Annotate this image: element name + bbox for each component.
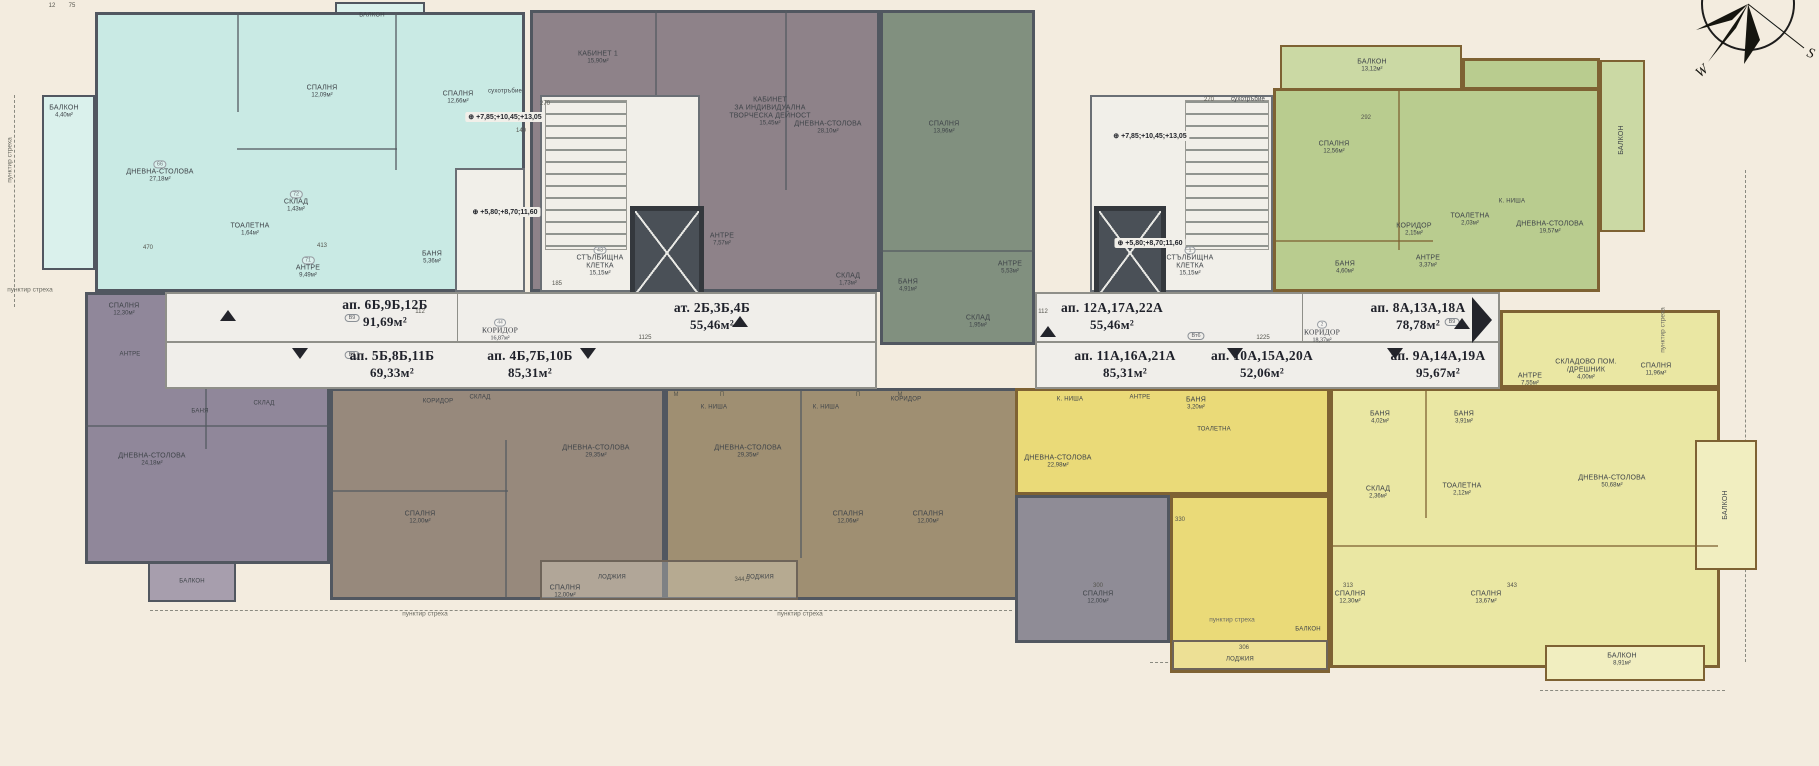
room-name: БАЛКОН bbox=[1357, 59, 1387, 67]
room-label: ТОАЛЕТНА1,64м² bbox=[231, 223, 270, 238]
room-name: ДНЕВНА-СТОЛОВА bbox=[126, 169, 193, 177]
unit-name: ап. 6Б,9Б,12Б bbox=[342, 296, 428, 314]
compass-south-label: S bbox=[1805, 46, 1817, 62]
region-apartment-yellow-top bbox=[1015, 388, 1330, 495]
room-area: 3,20м² bbox=[1186, 405, 1206, 412]
room-area: 12,66м² bbox=[443, 99, 474, 106]
stair-flight bbox=[1185, 100, 1269, 250]
room-label: СПАЛНЯ13,67м² bbox=[1471, 591, 1502, 606]
room-name: БАЛКОН bbox=[49, 105, 79, 113]
unit-name: ап. 11А,16А,21А bbox=[1074, 347, 1175, 365]
room-name: КОРИДОР bbox=[482, 327, 518, 336]
door-arrow-icon bbox=[580, 348, 596, 359]
room-name: БАЛКОН bbox=[1618, 125, 1626, 155]
room-area: 3,91м² bbox=[1454, 419, 1474, 426]
room-label: БАНЯ4,02м² bbox=[1370, 411, 1390, 426]
room-label: АНТРЕ7,55м² bbox=[1518, 373, 1542, 388]
room-area: 12,00м² bbox=[1083, 599, 1114, 606]
unit-area: 78,78м² bbox=[1370, 316, 1465, 333]
room-area: 1,73м² bbox=[836, 281, 860, 288]
unit-area: 95,67м² bbox=[1390, 364, 1485, 381]
room-name: АНТРЕ bbox=[296, 265, 320, 273]
dimension-text: 75 bbox=[69, 3, 76, 9]
room-name: ДНЕВНА-СТОЛОВА bbox=[794, 121, 861, 129]
room-name: АНТРЕ bbox=[1129, 395, 1150, 402]
room-name: СПАЛНЯ bbox=[833, 511, 864, 519]
eave-label: пунктир стреха bbox=[777, 611, 822, 618]
room-ref-badge: 43 bbox=[593, 246, 606, 254]
room-name: ТОАЛЕТНА bbox=[1197, 427, 1231, 434]
room-area: 12,09м² bbox=[307, 93, 338, 100]
room-label: СКЛАДОВО ПОМ. /ДРЕШНИК4,00м² bbox=[1555, 359, 1617, 382]
unit-label: ап. 4Б,7Б,10Б 85,31м² bbox=[487, 347, 573, 381]
room-name: СПАЛНЯ bbox=[1471, 591, 1502, 599]
eave-dashed-line bbox=[1745, 170, 1746, 662]
room-label: БАЛКОН bbox=[179, 579, 205, 586]
dimension-text: 292 bbox=[1361, 115, 1371, 121]
room-area: 15,15м² bbox=[577, 271, 624, 278]
room-name: ДНЕВНА-СТОЛОВА bbox=[714, 445, 781, 453]
room-label: АНТРЕ7,57м² bbox=[710, 233, 734, 248]
compass-icon: W S bbox=[1686, 0, 1819, 122]
elevator-shaft-icon bbox=[630, 206, 704, 300]
room-label: СКЛАД1,73м² bbox=[836, 273, 860, 288]
room-name: СПАЛНЯ bbox=[1319, 141, 1350, 149]
room-area: 7,57м² bbox=[710, 241, 734, 248]
dimension-text: П bbox=[720, 392, 724, 398]
unit-area: 52,06м² bbox=[1211, 364, 1313, 381]
room-label: 71АНТРЕ9,49м² bbox=[296, 256, 320, 279]
dimension-text: 270 bbox=[1204, 97, 1214, 103]
room-label: 72СКЛАД1,43м² bbox=[284, 190, 308, 213]
room-label: 66ДНЕВНА-СТОЛОВА27,18м² bbox=[126, 160, 193, 183]
room-label: БАНЯ4,60м² bbox=[1335, 261, 1355, 276]
door-arrow-icon bbox=[1040, 326, 1056, 337]
interior-wall bbox=[85, 425, 330, 427]
room-name: сухотръбие bbox=[1231, 97, 1265, 104]
level-annotation: +5,80;+8,70;11,60 bbox=[1114, 238, 1185, 248]
room-label: БАЛКОН bbox=[1722, 490, 1730, 520]
room-name: ТОАЛЕТНА bbox=[1451, 213, 1490, 221]
eave-label: пунктир стреха bbox=[7, 137, 14, 182]
room-ref-badge: 1 bbox=[1185, 246, 1195, 254]
dimension-text: 300 bbox=[1093, 583, 1103, 589]
eave-dashed-line bbox=[14, 95, 15, 307]
room-area: 2,15м² bbox=[1396, 231, 1431, 238]
unit-label: ап. 11А,16А,21А 85,31м² bbox=[1074, 347, 1175, 381]
room-area: 19,57м² bbox=[1516, 229, 1583, 236]
entrance-flag-icon bbox=[1472, 297, 1492, 343]
room-label: СКЛАД2,36м² bbox=[1366, 486, 1390, 501]
room-label: ДНЕВНА-СТОЛОВА22,98м² bbox=[1024, 455, 1091, 470]
room-name: КОРИДОР bbox=[891, 397, 922, 404]
room-name: БАНЯ bbox=[1454, 411, 1474, 419]
room-area: 7,55м² bbox=[1518, 381, 1542, 388]
region-green-top bbox=[1462, 58, 1600, 90]
dimension-text: 344,5 bbox=[734, 577, 749, 583]
room-name: ДНЕВНА-СТОЛОВА bbox=[1516, 221, 1583, 229]
room-name: СПАЛНЯ bbox=[1335, 591, 1366, 599]
room-name: ЛОДЖИЯ bbox=[598, 575, 626, 582]
room-area: 12,00м² bbox=[913, 519, 944, 526]
unit-area: 91,69м² bbox=[342, 313, 428, 330]
door-arrow-icon bbox=[292, 348, 308, 359]
room-name: БАНЯ bbox=[191, 409, 208, 416]
dimension-text: 270 bbox=[540, 101, 550, 107]
room-name: БАНЯ bbox=[422, 251, 442, 259]
room-label: БАЛКОН4,40м² bbox=[49, 105, 79, 120]
eave-label: пунктир стреха bbox=[1209, 617, 1254, 624]
room-name: БАНЯ bbox=[1335, 261, 1355, 269]
eave-label: пунктир стреха bbox=[1660, 307, 1667, 352]
room-name: СКЛАД bbox=[284, 199, 308, 207]
interior-wall bbox=[395, 12, 397, 170]
room-name: ДНЕВНА-СТОЛОВА bbox=[562, 445, 629, 453]
interior-wall bbox=[237, 148, 397, 150]
room-area: 9,49м² bbox=[296, 273, 320, 280]
region-apartment-sage bbox=[880, 10, 1035, 345]
level-annotation: +7,85;+10,45;+13,05 bbox=[1110, 131, 1189, 141]
compass-west-label: W bbox=[1693, 61, 1713, 81]
room-name: КАБИНЕТ 1 bbox=[578, 51, 618, 59]
dimension-text: 306 bbox=[1239, 645, 1249, 651]
room-name: СКЛАД bbox=[836, 273, 860, 281]
unit-area: 69,33м² bbox=[350, 364, 435, 381]
room-area: 1,64м² bbox=[231, 231, 270, 238]
unit-label: ап. 5Б,8Б,11Б 69,33м² bbox=[350, 347, 435, 381]
room-area: 24,18м² bbox=[118, 461, 185, 468]
room-area: 1,95м² bbox=[966, 323, 990, 330]
room-name: АНТРЕ bbox=[1416, 255, 1440, 263]
room-area: 2,36м² bbox=[1366, 494, 1390, 501]
room-area: 8,91м² bbox=[1607, 661, 1637, 668]
room-area: 5,36м² bbox=[422, 259, 442, 266]
room-label: БАЛКОН8,91м² bbox=[1607, 653, 1637, 668]
room-area: 12,06м² bbox=[833, 519, 864, 526]
room-label: ЛОДЖИЯ bbox=[1226, 657, 1254, 664]
room-label: СПАЛНЯ12,06м² bbox=[833, 511, 864, 526]
room-label: ДНЕВНА-СТОЛОВА28,10м² bbox=[794, 121, 861, 136]
room-label: СПАЛНЯ12,00м² bbox=[550, 585, 581, 600]
room-name: КАБИНЕТ ЗА ИНДИВИДУАЛНА ТВОРЧЕСКА ДЕЙНОС… bbox=[729, 96, 810, 120]
unit-label: ап. 9А,14А,19А 95,67м² bbox=[1390, 347, 1485, 381]
room-label: ЛОДЖИЯ bbox=[746, 575, 774, 582]
room-label: СПАЛНЯ12,00м² bbox=[913, 511, 944, 526]
room-name: ТОАЛЕТНА bbox=[231, 223, 270, 231]
dimension-text: 112 bbox=[1038, 309, 1048, 315]
unit-label: ап. 10А,15А,20А 52,06м² bbox=[1211, 347, 1313, 381]
dimension-text: 12 bbox=[49, 3, 56, 9]
eave-label: пунктир стреха bbox=[7, 287, 52, 294]
room-area: 15,15м² bbox=[1167, 271, 1214, 278]
room-label: сухотръбие bbox=[488, 89, 522, 96]
room-name: БАНЯ bbox=[1370, 411, 1390, 419]
room-label: СПАЛНЯ11,96м² bbox=[1641, 363, 1672, 378]
unit-area: 55,46м² bbox=[674, 316, 750, 333]
room-name: ЛОДЖИЯ bbox=[746, 575, 774, 582]
band-row-divider bbox=[1037, 341, 1498, 343]
room-area: 22,98м² bbox=[1024, 463, 1091, 470]
room-label: СПАЛНЯ12,66м² bbox=[443, 91, 474, 106]
room-name: СПАЛНЯ bbox=[307, 85, 338, 93]
room-name: СКЛАД bbox=[966, 315, 990, 323]
room-label: К. НИША bbox=[1499, 199, 1525, 206]
room-label: СПАЛНЯ12,09м² bbox=[307, 85, 338, 100]
room-area: 12,00м² bbox=[550, 593, 581, 600]
room-name: КОРИДОР bbox=[1396, 223, 1431, 231]
room-area: 50,68м² bbox=[1578, 483, 1645, 490]
room-area: 29,35м² bbox=[714, 453, 781, 460]
room-label: БАНЯ3,91м² bbox=[1454, 411, 1474, 426]
dimension-text: 1125 bbox=[639, 335, 652, 341]
band-col-divider bbox=[457, 294, 458, 341]
room-label: БАНЯ3,20м² bbox=[1186, 397, 1206, 412]
room-label: БАЛКОН bbox=[359, 13, 385, 20]
level-annotation: +7,85;+10,45;+13,05 bbox=[465, 112, 544, 122]
room-label: БАНЯ bbox=[191, 409, 208, 416]
room-name: сухотръбие bbox=[488, 89, 522, 96]
room-name: СПАЛНЯ bbox=[929, 121, 960, 129]
room-label: СПАЛНЯ12,00м² bbox=[1083, 591, 1114, 606]
room-label: СКЛАД1,95м² bbox=[966, 315, 990, 330]
room-name: СПАЛНЯ bbox=[913, 511, 944, 519]
room-label: КАБИНЕТ 115,90м² bbox=[578, 51, 618, 66]
room-area: 11,96м² bbox=[1641, 371, 1672, 378]
region-service-rooms bbox=[455, 168, 525, 292]
room-label: К. НИША bbox=[701, 405, 727, 412]
dimension-text: 330 bbox=[1175, 517, 1185, 523]
room-area: 13,67м² bbox=[1471, 599, 1502, 606]
interior-wall bbox=[505, 440, 507, 598]
room-label: БАЛКОН13,12м² bbox=[1357, 59, 1387, 74]
room-label: ТОАЛЕТНА2,03м² bbox=[1451, 213, 1490, 228]
interior-wall bbox=[1275, 240, 1433, 242]
room-area: 4,60м² bbox=[1335, 269, 1355, 276]
room-area: 1,43м² bbox=[284, 207, 308, 214]
room-name: БАЛКОН bbox=[1295, 627, 1321, 634]
room-area: 13,96м² bbox=[929, 129, 960, 136]
room-area: 15,90м² bbox=[578, 59, 618, 66]
room-area: 2,03м² bbox=[1451, 221, 1490, 228]
room-name: СПАЛНЯ bbox=[109, 303, 140, 311]
room-area: 4,91м² bbox=[898, 287, 918, 294]
elevator-shaft-icon bbox=[1094, 206, 1166, 300]
room-name: АНТРЕ bbox=[1518, 373, 1542, 381]
room-area: 13,12м² bbox=[1357, 67, 1387, 74]
unit-label: ап. 6Б,9Б,12Б 91,69м² bbox=[342, 296, 428, 330]
room-name: СТЪЛБИЩНА КЛЕТКА bbox=[1167, 255, 1214, 271]
room-name: СПАЛНЯ bbox=[405, 511, 436, 519]
room-label: 44КОРИДОР16,87м² bbox=[482, 318, 518, 343]
unit-area: 55,46м² bbox=[1061, 316, 1163, 333]
room-name: ДНЕВНА-СТОЛОВА bbox=[1578, 475, 1645, 483]
room-label: КОРИДОР bbox=[423, 399, 454, 406]
interior-wall bbox=[205, 389, 207, 449]
room-name: ТОАЛЕТНА bbox=[1443, 483, 1482, 491]
room-name: АНТРЕ bbox=[119, 352, 140, 359]
door-badge: Вт6 bbox=[1187, 332, 1204, 340]
room-label: СКЛАД bbox=[469, 395, 490, 402]
room-label: сухотръбие bbox=[1231, 97, 1265, 104]
dimension-text: 313 bbox=[1343, 583, 1353, 589]
interior-wall bbox=[1425, 390, 1427, 518]
room-name: БАЛКОН bbox=[1722, 490, 1730, 520]
room-area: 4,02м² bbox=[1370, 419, 1390, 426]
dimension-text: 185 bbox=[552, 281, 562, 287]
room-label: ЛОДЖИЯ bbox=[598, 575, 626, 582]
room-name: СКЛАДОВО ПОМ. /ДРЕШНИК bbox=[1555, 359, 1617, 375]
unit-name: ап. 12А,17А,22А bbox=[1061, 299, 1163, 317]
room-name: ДНЕВНА-СТОЛОВА bbox=[118, 453, 185, 461]
unit-label: ат. 2Б,3Б,4Б 55,46м² bbox=[674, 299, 750, 333]
room-label: СПАЛНЯ13,96м² bbox=[929, 121, 960, 136]
region-apartment-pale-main bbox=[1330, 388, 1720, 668]
room-name: БАЛКОН bbox=[1607, 653, 1637, 661]
room-label: БАЛКОН bbox=[1295, 627, 1321, 634]
room-label: СПАЛНЯ12,30м² bbox=[1335, 591, 1366, 606]
room-label: 2КОРИДОР18,37м² bbox=[1304, 320, 1340, 345]
room-name: БАНЯ bbox=[1186, 397, 1206, 405]
unit-name: ап. 10А,15А,20А bbox=[1211, 347, 1313, 365]
room-label: АНТРЕ bbox=[119, 352, 140, 359]
dimension-text: М bbox=[898, 392, 903, 398]
dimension-text: П bbox=[856, 392, 860, 398]
dimension-text: 413 bbox=[317, 243, 327, 249]
unit-label: ап. 8А,13А,18А 78,78м² bbox=[1370, 299, 1465, 333]
room-area: 4,40м² bbox=[49, 113, 79, 120]
room-area: 12,30м² bbox=[1335, 599, 1366, 606]
eave-label: пунктир стреха bbox=[402, 611, 447, 618]
room-name: СКЛАД bbox=[469, 395, 490, 402]
room-label: КОРИДОР bbox=[891, 397, 922, 404]
dimension-text: М bbox=[674, 392, 679, 398]
interior-wall bbox=[237, 12, 239, 112]
room-name: ДНЕВНА-СТОЛОВА bbox=[1024, 455, 1091, 463]
room-label: АНТРЕ bbox=[1129, 395, 1150, 402]
dimension-text: 470 bbox=[143, 245, 153, 251]
door-arrow-icon bbox=[220, 310, 236, 321]
room-label: ДНЕВНА-СТОЛОВА29,35м² bbox=[562, 445, 629, 460]
room-label: 1СТЪЛБИЩНА КЛЕТКА15,15м² bbox=[1167, 246, 1214, 277]
room-name: КОРИДОР bbox=[423, 399, 454, 406]
unit-label: ап. 12А,17А,22А 55,46м² bbox=[1061, 299, 1163, 333]
room-name: СПАЛНЯ bbox=[550, 585, 581, 593]
region-teal-balcony-left bbox=[42, 95, 95, 270]
room-name: ЛОДЖИЯ bbox=[1226, 657, 1254, 664]
room-ref-badge: 72 bbox=[289, 190, 302, 198]
interior-wall bbox=[880, 250, 1035, 252]
room-label: ДНЕВНА-СТОЛОВА50,68м² bbox=[1578, 475, 1645, 490]
interior-wall bbox=[655, 10, 657, 95]
room-name: К. НИША bbox=[1499, 199, 1525, 206]
room-name: БАНЯ bbox=[898, 279, 918, 287]
room-label: БАНЯ4,91м² bbox=[898, 279, 918, 294]
interior-wall bbox=[1332, 545, 1718, 547]
room-area: 16,87м² bbox=[482, 336, 518, 343]
room-area: 12,56м² bbox=[1319, 149, 1350, 156]
unit-name: ап. 5Б,8Б,11Б bbox=[350, 347, 435, 365]
room-ref-badge: 71 bbox=[301, 256, 314, 264]
unit-name: ат. 2Б,3Б,4Б bbox=[674, 299, 750, 317]
room-label: СКЛАД bbox=[253, 401, 274, 408]
room-area: 4,00м² bbox=[1555, 375, 1617, 382]
dimension-text: 343 bbox=[1507, 583, 1517, 589]
room-name: СКЛАД bbox=[1366, 486, 1390, 494]
room-label: ДНЕВНА-СТОЛОВА24,18м² bbox=[118, 453, 185, 468]
loggia-strip bbox=[1172, 640, 1328, 670]
room-name: КОРИДОР bbox=[1304, 329, 1340, 338]
room-label: ТОАЛЕТНА bbox=[1197, 427, 1231, 434]
room-area: 28,10м² bbox=[794, 129, 861, 136]
interior-wall bbox=[800, 390, 802, 558]
unit-name: ап. 9А,14А,19А bbox=[1390, 347, 1485, 365]
interior-wall bbox=[330, 490, 508, 492]
room-area: 29,35м² bbox=[562, 453, 629, 460]
unit-area: 85,31м² bbox=[487, 364, 573, 381]
room-label: БАНЯ5,36м² bbox=[422, 251, 442, 266]
room-label: ТОАЛЕТНА2,12м² bbox=[1443, 483, 1482, 498]
room-area: 5,53м² bbox=[998, 269, 1022, 276]
room-name: АНТРЕ bbox=[710, 233, 734, 241]
unit-name: ап. 4Б,7Б,10Б bbox=[487, 347, 573, 365]
room-area: 12,30м² bbox=[109, 311, 140, 318]
region-apartment-gray bbox=[1015, 495, 1170, 643]
room-name: СПАЛНЯ bbox=[1641, 363, 1672, 371]
room-area: 2,12м² bbox=[1443, 491, 1482, 498]
room-area: 12,00м² bbox=[405, 519, 436, 526]
dimension-text: 1225 bbox=[1256, 335, 1269, 341]
room-name: АНТРЕ bbox=[998, 261, 1022, 269]
room-name: К. НИША bbox=[1057, 397, 1083, 404]
band-row-divider bbox=[167, 341, 875, 343]
room-name: СКЛАД bbox=[253, 401, 274, 408]
room-name: СТЪЛБИЩНА КЛЕТКА bbox=[577, 255, 624, 271]
dimension-text: 140 bbox=[516, 128, 526, 134]
room-label: АНТРЕ5,53м² bbox=[998, 261, 1022, 276]
room-name: СПАЛНЯ bbox=[1083, 591, 1114, 599]
room-area: 27,18м² bbox=[126, 177, 193, 184]
stair-flight bbox=[545, 100, 627, 250]
unit-name: ап. 8А,13А,18А bbox=[1370, 299, 1465, 317]
room-label: ДНЕВНА-СТОЛОВА19,57м² bbox=[1516, 221, 1583, 236]
band-col-divider bbox=[1302, 294, 1303, 341]
level-annotation: +5,80;+8,70;11,60 bbox=[469, 207, 540, 217]
room-label: СПАЛНЯ12,56м² bbox=[1319, 141, 1350, 156]
room-name: БАЛКОН bbox=[179, 579, 205, 586]
room-area: 18,37м² bbox=[1304, 338, 1340, 345]
room-label: СПАЛНЯ12,00м² bbox=[405, 511, 436, 526]
eave-dashed-line bbox=[150, 610, 1012, 611]
room-label: ДНЕВНА-СТОЛОВА29,35м² bbox=[714, 445, 781, 460]
room-label: АНТРЕ3,37м² bbox=[1416, 255, 1440, 270]
room-name: БАЛКОН bbox=[359, 13, 385, 20]
room-ref-badge: 66 bbox=[153, 160, 166, 168]
room-label: К. НИША bbox=[813, 405, 839, 412]
eave-dashed-line bbox=[1540, 690, 1725, 691]
room-label: К. НИША bbox=[1057, 397, 1083, 404]
floor-plan: ап. 6Б,9Б,12Б 91,69м² ап. 5Б,8Б,11Б 69,3… bbox=[0, 0, 1819, 766]
room-label: 43СТЪЛБИЩНА КЛЕТКА15,15м² bbox=[577, 246, 624, 277]
room-name: К. НИША bbox=[813, 405, 839, 412]
room-label: КОРИДОР2,15м² bbox=[1396, 223, 1431, 238]
room-name: К. НИША bbox=[701, 405, 727, 412]
room-name: СПАЛНЯ bbox=[443, 91, 474, 99]
room-area: 3,37м² bbox=[1416, 263, 1440, 270]
room-label: БАЛКОН bbox=[1618, 125, 1626, 155]
unit-area: 85,31м² bbox=[1074, 364, 1175, 381]
room-label: СПАЛНЯ12,30м² bbox=[109, 303, 140, 318]
